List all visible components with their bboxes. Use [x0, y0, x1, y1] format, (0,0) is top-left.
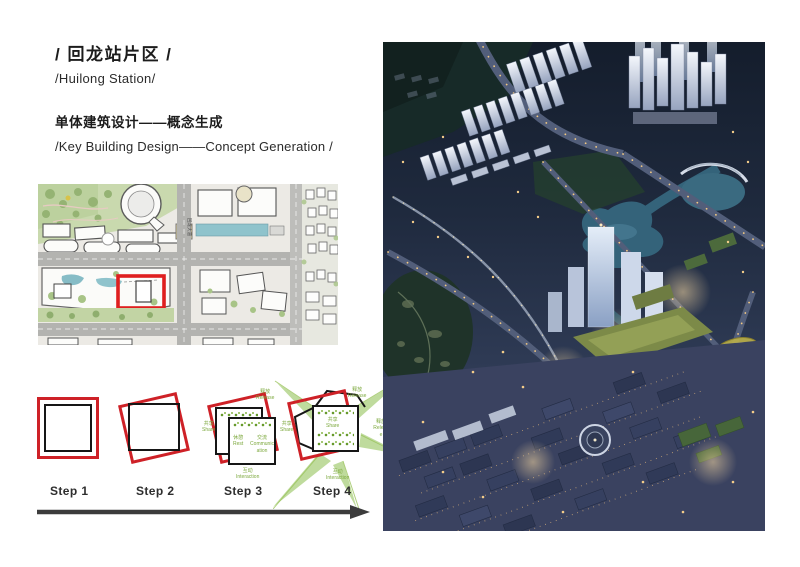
- step2-label: Step 2: [136, 484, 174, 498]
- step4-green-dots-1: [317, 410, 354, 416]
- header: / 回龙站片区 / /Huilong Station/ 单体建筑设计——概念生成…: [55, 40, 333, 154]
- page-title-zh: / 回龙站片区 /: [55, 40, 333, 65]
- step3-label-interaction: 互动Interaction: [236, 468, 259, 481]
- map-green-strip: [38, 308, 174, 322]
- map-buildings-northeast: [196, 186, 284, 236]
- site-plan-svg: 回龙大道: [38, 184, 338, 345]
- step3-label: Step 3: [224, 484, 262, 498]
- map-residential-east: [302, 184, 339, 345]
- city-rendering-svg: [383, 42, 765, 531]
- step4-black-square: 共享Share: [312, 405, 359, 452]
- arrow-icon: [35, 504, 370, 520]
- step3-label-release: 释放Release: [256, 389, 274, 402]
- site-plan-map: 回龙大道: [38, 184, 338, 345]
- map-road-label: 回龙大道: [186, 218, 193, 236]
- section-title-zh: 单体建筑设计——概念生成: [55, 111, 333, 131]
- step1-black-square: [44, 404, 92, 452]
- map-roundabout: [102, 233, 114, 245]
- step3-label-communication: 交流Communication: [249, 435, 275, 454]
- step4-label-release-top: 释放Release: [348, 387, 366, 400]
- steps-timeline: [35, 504, 370, 520]
- step1-label: Step 1: [50, 484, 88, 498]
- slide: { "header": { "title_zh": "/ 回龙站片区 /", "…: [0, 0, 800, 567]
- concept-steps: 释放Release 共享Share 休憩Rest 交流Communication…: [30, 383, 390, 523]
- city-rendering: [383, 42, 765, 531]
- step4-label-share-left: 共享Share: [280, 421, 293, 434]
- step2-black-square: [128, 403, 180, 451]
- step4-label: Step 4: [313, 484, 351, 498]
- step4-label-share-center: 共享Share: [326, 417, 339, 430]
- step3-green-dots-b: [233, 422, 271, 428]
- step4-green-dots-2: [317, 432, 354, 438]
- step4-label-interaction: 互动Interaction: [326, 469, 349, 482]
- section-title-en: /Key Building Design——Concept Generation…: [55, 139, 333, 154]
- step3-label-rest: 休憩Rest: [233, 435, 243, 448]
- page-title-en: /Huilong Station/: [55, 71, 333, 86]
- step4-green-dots-3: [317, 441, 354, 447]
- step3-label-share: 共享Share: [202, 421, 215, 434]
